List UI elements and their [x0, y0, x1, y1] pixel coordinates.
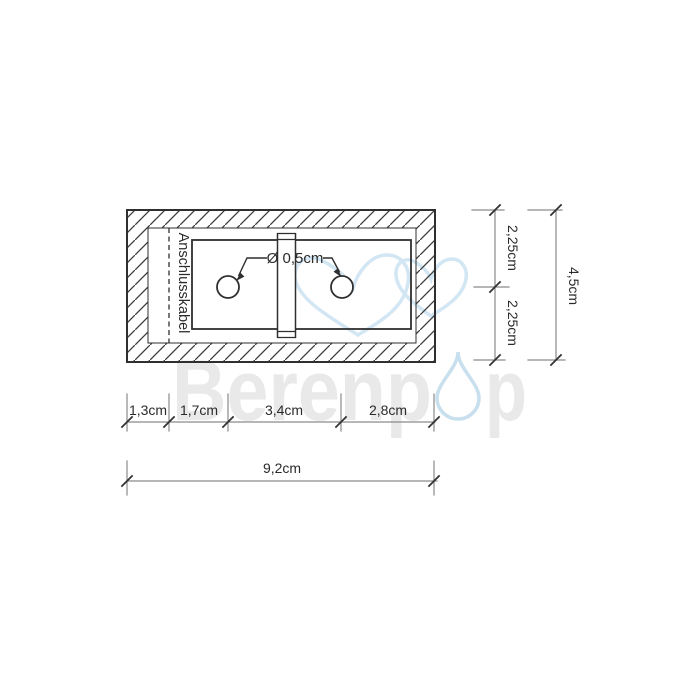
- horizontal-dimensions: 1,3cm 1,7cm 3,4cm 2,8cm 9,2cm: [122, 394, 439, 495]
- dimension-label-bottom-total: 9,2cm: [263, 460, 301, 476]
- mounting-hole-right: [331, 276, 353, 298]
- technical-drawing-canvas: Berenp p Anschlusskabel: [0, 0, 685, 685]
- dimension-label-right-top: 2,25cm: [505, 225, 521, 271]
- dimension-label-seg-4: 2,8cm: [369, 402, 407, 418]
- watermark-drop-icon: [437, 352, 479, 419]
- dimension-label-seg-3: 3,4cm: [265, 402, 303, 418]
- central-channel: [277, 233, 296, 338]
- dimension-label-right-total: 4,5cm: [566, 267, 582, 305]
- dimension-label-seg-2: 1,7cm: [180, 402, 218, 418]
- dimension-label-seg-1: 1,3cm: [129, 402, 167, 418]
- basin-drawing: Anschlusskabel Ø 0,5cm: [127, 210, 435, 362]
- cable-label: Anschlusskabel: [175, 233, 191, 334]
- vertical-dimensions: 2,25cm 2,25cm 4,5cm: [472, 205, 582, 365]
- leader-arrow-left-icon: [236, 273, 244, 281]
- technical-drawing-page: Berenp p Anschlusskabel: [0, 0, 685, 685]
- dimension-label-right-bottom: 2,25cm: [505, 300, 521, 346]
- hole-diameter-label: Ø 0,5cm: [267, 250, 324, 267]
- mounting-hole-left: [217, 276, 239, 298]
- watermark-heart-large: [295, 255, 409, 335]
- watermark-brand-text-right: p: [485, 343, 527, 439]
